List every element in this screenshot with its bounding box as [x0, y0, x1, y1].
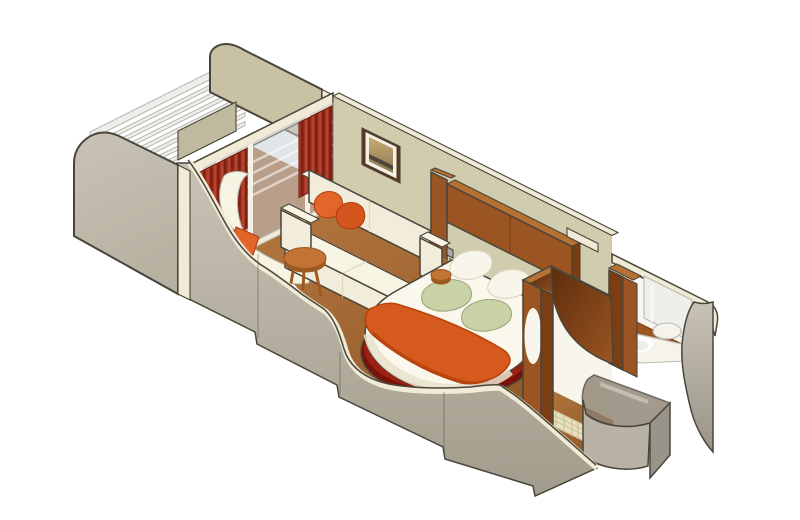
- outer-wall-curved-cut: [682, 302, 713, 452]
- divider-panel-side: [541, 289, 553, 430]
- shower-enclosure: [582, 375, 670, 478]
- nightstand-top: [431, 270, 451, 281]
- stateroom-scene: [0, 0, 800, 520]
- throw-pillow: [336, 203, 365, 229]
- panel-oval-cutout: [525, 308, 542, 364]
- partition-forward-edge: [178, 165, 190, 300]
- door-mullion: [248, 143, 253, 245]
- bath-wood-wall-side: [623, 277, 637, 377]
- privacy-partition-forward: [74, 133, 178, 294]
- table-top: [284, 248, 326, 269]
- shelf-bowl: [653, 323, 681, 339]
- stateroom-cutaway-illustration: [0, 0, 800, 520]
